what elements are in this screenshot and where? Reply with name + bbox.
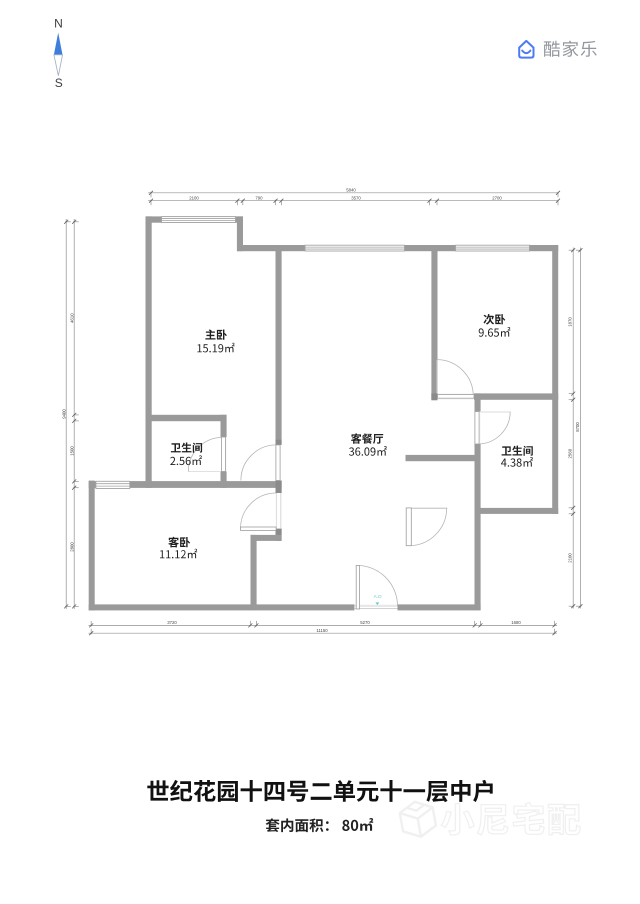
svg-text:3720: 3720 [167, 620, 177, 625]
svg-text:A.D: A.D [374, 594, 383, 600]
svg-text:2800: 2800 [69, 542, 74, 552]
svg-text:N: N [54, 16, 63, 30]
svg-text:S: S [55, 76, 63, 90]
svg-text:3570: 3570 [351, 196, 361, 201]
svg-text:4610: 4610 [69, 313, 74, 323]
svg-text:5270: 5270 [360, 620, 370, 625]
svg-text:2560: 2560 [568, 448, 573, 458]
svg-text:5840: 5840 [346, 188, 356, 193]
svg-text:11150: 11150 [316, 628, 328, 633]
svg-text:2100: 2100 [568, 553, 573, 563]
svg-text:2700: 2700 [492, 196, 502, 201]
svg-text:2100: 2100 [189, 196, 199, 201]
svg-text:1680: 1680 [511, 620, 521, 625]
svg-text:8700: 8700 [575, 422, 580, 432]
svg-text:1500: 1500 [69, 446, 74, 456]
svg-text:790: 790 [255, 196, 263, 201]
svg-text:1870: 1870 [568, 317, 573, 327]
svg-text:9400: 9400 [61, 409, 66, 419]
